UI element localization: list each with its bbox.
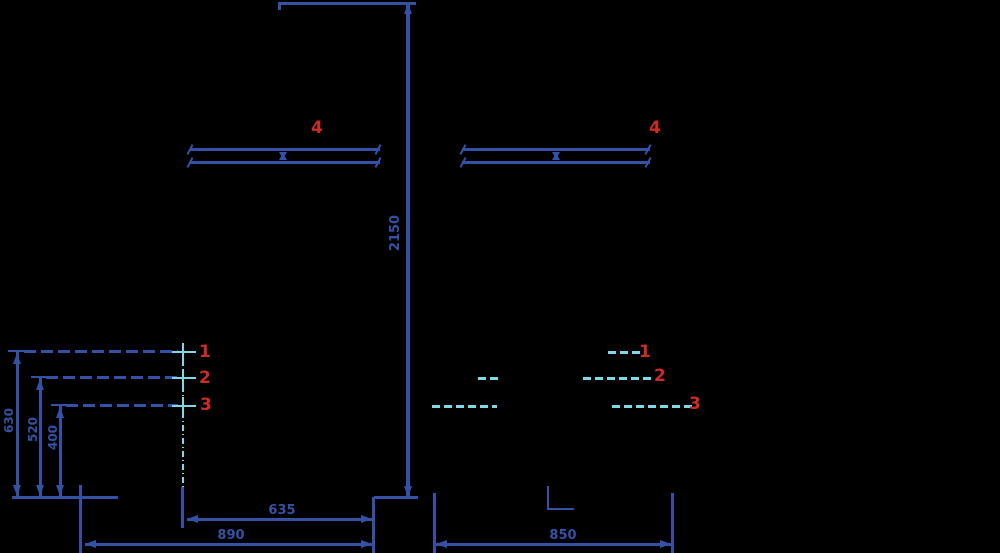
callout-4-right: 4 <box>649 118 661 138</box>
rod-line-right-bottom <box>462 161 650 164</box>
hidden-line-item2-left-part <box>478 377 498 380</box>
height1-extension-tick <box>8 350 24 352</box>
rod-break-tick-icon <box>645 157 652 168</box>
centerline-cross-icon <box>182 343 184 360</box>
width-center-dimension-line <box>187 518 373 521</box>
ceiling-line <box>278 2 416 5</box>
height2-extension-tick <box>31 376 47 378</box>
height3-dimension-text: 400 <box>46 415 59 460</box>
width-left-dimension-text: 890 <box>206 528 256 543</box>
step-outline-vertical <box>547 486 549 510</box>
step-outline-horizontal <box>547 508 574 510</box>
rod-line-right-top <box>462 148 650 151</box>
arrowhead-up-icon <box>36 379 44 390</box>
callout-3-left: 3 <box>200 395 212 415</box>
width-left-dimension-line <box>85 543 373 546</box>
width-right-dimension-text: 850 <box>538 528 588 543</box>
centerline-cross-icon <box>172 377 196 379</box>
rod-break-tick-icon <box>375 157 382 168</box>
callout-1-right: 1 <box>639 342 651 362</box>
rod-break-chevron-icon <box>279 153 287 160</box>
arrowhead-left-icon <box>436 540 447 548</box>
vertical-centerline <box>182 360 184 490</box>
arrowhead-right-icon <box>660 540 671 548</box>
centerline-cross-icon <box>172 351 196 353</box>
arrowhead-up-icon <box>404 3 412 14</box>
floor-reference-line-center <box>374 496 418 499</box>
rod-break-tick-icon <box>375 144 382 155</box>
arrowhead-left-icon <box>187 515 198 523</box>
arrowhead-down-icon <box>36 485 44 496</box>
arrowhead-left-icon <box>85 540 96 548</box>
arrowhead-right-icon <box>361 540 372 548</box>
width-right-dimension-line <box>436 543 672 546</box>
height1-dimension-text: 630 <box>2 398 15 443</box>
callout-3-right: 3 <box>689 394 701 414</box>
arrowhead-up-icon <box>13 353 21 364</box>
arrowhead-down-icon <box>13 485 21 496</box>
extension-line-outer-left <box>79 485 82 553</box>
leader-line-item1 <box>24 350 178 353</box>
height2-dimension-text: 520 <box>26 407 39 452</box>
ceiling-line-end-tick <box>278 2 281 10</box>
arrowhead-down-icon <box>56 485 64 496</box>
hidden-line-item3-right <box>612 405 694 408</box>
rod-break-tick-icon <box>645 144 652 155</box>
callout-2-right: 2 <box>654 366 666 386</box>
hidden-line-item2-right <box>583 377 653 380</box>
hidden-line-item1-right <box>608 351 642 354</box>
leader-line-item2 <box>46 376 178 379</box>
hidden-line-item3-left-part <box>432 405 497 408</box>
callout-4-left: 4 <box>311 118 323 138</box>
height3-extension-tick <box>51 404 67 406</box>
installation-dimension-drawing: 2150 4 4 630 520 400 1 2 3 <box>0 0 1000 553</box>
height1-dimension-line <box>16 352 19 498</box>
arrowhead-right-icon <box>361 515 372 523</box>
centerline-cross-icon <box>172 405 196 407</box>
leader-line-item3 <box>66 404 178 407</box>
width-center-dimension-text: 635 <box>257 503 307 518</box>
floor-reference-line-left <box>12 496 118 499</box>
rod-line-left-bottom <box>190 161 380 164</box>
total-height-dimension-text: 2150 <box>388 203 402 263</box>
total-height-dimension-line <box>406 2 410 497</box>
callout-1-left: 1 <box>199 342 211 362</box>
rod-line-left-top <box>190 148 380 151</box>
rod-break-chevron-icon <box>552 153 560 160</box>
centerline-extension <box>181 487 184 528</box>
callout-2-left: 2 <box>199 368 211 388</box>
